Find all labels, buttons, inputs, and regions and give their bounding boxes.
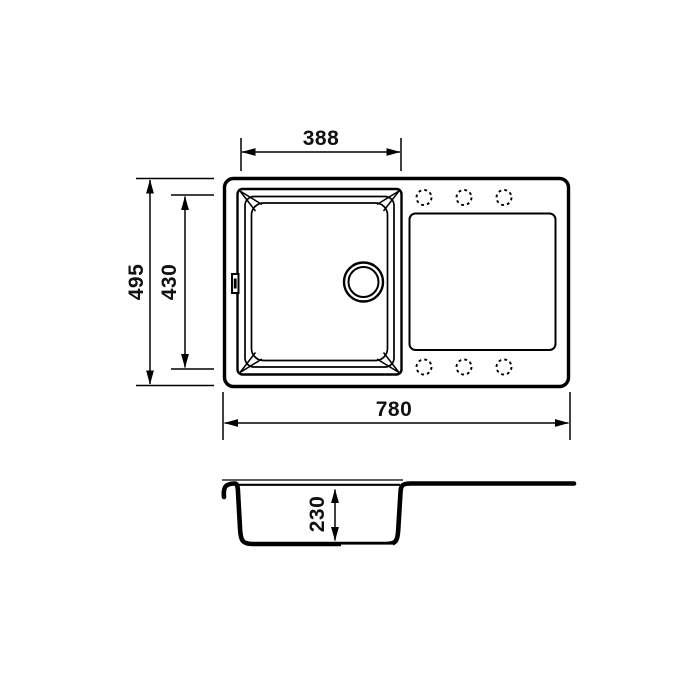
section-profile: [224, 484, 574, 545]
dim-label-bowl-width: 388: [303, 127, 340, 151]
drain-hole: [344, 263, 383, 302]
sink-outline: [225, 179, 569, 387]
sink-technical-drawing: 388 495 430 780 230: [0, 0, 700, 700]
top-view: [225, 179, 569, 387]
dim-label-overall-width: 780: [376, 398, 413, 422]
dim-label-bowl-height: 230: [306, 496, 330, 533]
tap-hole-icon: [497, 360, 512, 375]
drain-recess-line: [341, 545, 393, 547]
tap-hole-icon: [497, 190, 512, 205]
drawing-canvas: [0, 0, 700, 700]
dim-label-bowl-depth: 430: [158, 264, 182, 301]
tap-hole-icon: [417, 360, 432, 375]
tap-hole-icon: [457, 360, 472, 375]
drainboard: [410, 214, 556, 351]
dim-label-overall-depth: 495: [125, 264, 149, 301]
bowl: [238, 189, 402, 375]
tap-hole-icon: [417, 190, 432, 205]
tap-hole-markers: [417, 190, 512, 375]
bowl-corner-bevels: [240, 191, 399, 373]
section-view: [222, 480, 574, 547]
overflow-marker: [232, 274, 239, 293]
tap-hole-icon: [457, 190, 472, 205]
